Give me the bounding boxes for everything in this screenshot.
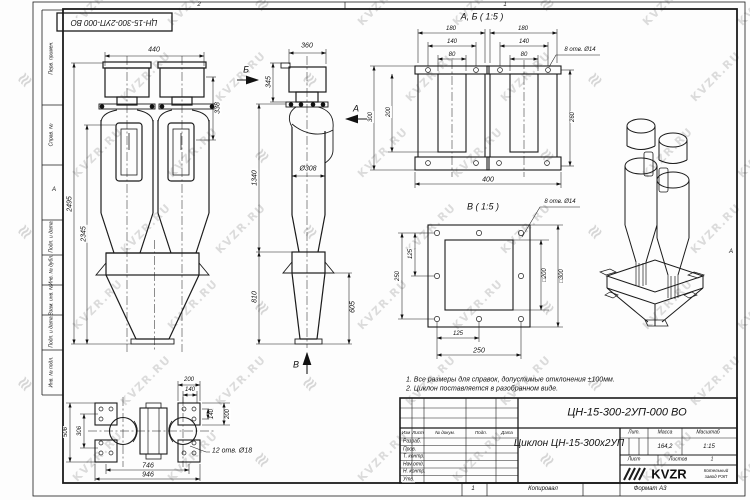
title-block-grid bbox=[400, 398, 737, 483]
section-v bbox=[398, 207, 580, 359]
drawing-sheet: ≋KVZR.RUKVZR.RU≋KVZR.RUKVZR.RU≋KVZR.RUKV… bbox=[0, 0, 750, 500]
brand-spring-icon bbox=[624, 468, 645, 480]
front-view bbox=[71, 52, 216, 352]
isometric-view bbox=[600, 119, 704, 326]
drawing-linework bbox=[0, 0, 750, 500]
plan-view bbox=[66, 381, 230, 481]
section-ab bbox=[370, 29, 600, 188]
side-view bbox=[237, 49, 367, 374]
